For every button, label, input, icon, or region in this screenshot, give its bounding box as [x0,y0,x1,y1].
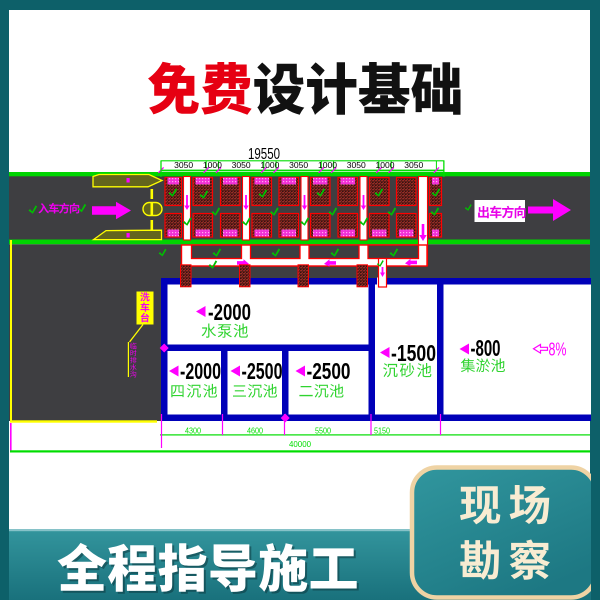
svg-text:4600: 4600 [247,427,263,436]
svg-text:5150: 5150 [374,427,390,436]
svg-text:-2500: -2500 [307,358,351,384]
svg-text:-2500: -2500 [242,358,283,384]
svg-text:-2000: -2000 [208,299,251,325]
svg-text:5500: 5500 [315,427,331,436]
svg-text:-1500: -1500 [391,340,436,366]
svg-text:1000: 1000 [260,160,279,170]
svg-text:1000: 1000 [203,160,222,170]
svg-text:-2000: -2000 [180,358,221,384]
svg-text:3050: 3050 [347,160,366,170]
svg-text:3050: 3050 [289,160,308,170]
svg-text:3050: 3050 [174,160,193,170]
svg-text:1000: 1000 [318,160,337,170]
svg-text:-800: -800 [471,335,501,361]
svg-text:3050: 3050 [404,160,423,170]
svg-text:8%: 8% [549,339,567,360]
svg-text:40000: 40000 [289,440,312,449]
svg-text:3050: 3050 [232,160,251,170]
svg-text:4300: 4300 [185,427,201,436]
svg-text:1000: 1000 [376,160,395,170]
